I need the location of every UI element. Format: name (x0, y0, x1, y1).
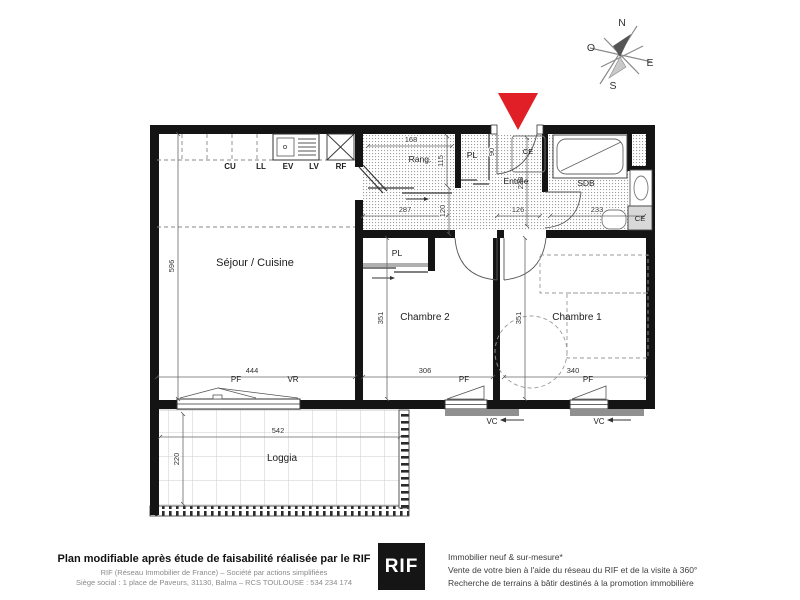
sink-icon (273, 134, 319, 160)
kitchen-counter (157, 134, 355, 227)
kitchen-label-ev: EV (283, 162, 294, 171)
label-pf-sejour: PF (231, 375, 241, 384)
loggia-railing-bottom (150, 506, 409, 516)
dim-233: 233 (591, 205, 604, 214)
closet-label-pl-hall: PL (467, 150, 478, 160)
dim-351-chambre2: 351 (376, 312, 385, 325)
compass-east-label: E (646, 57, 653, 69)
dim-444: 444 (246, 366, 259, 375)
compass-north-label: N (618, 17, 626, 29)
label-vc-chambre1: VC (593, 417, 604, 426)
footer-services: Immobilier neuf & sur-mesure* Vente de v… (448, 551, 748, 589)
dim-168: 168 (405, 135, 418, 144)
room-label-loggia: Loggia (267, 453, 297, 464)
footer-service-line: Immobilier neuf & sur-mesure* (448, 551, 748, 564)
footer-service-line: Vente de votre bien à l'aide du réseau d… (448, 564, 748, 577)
window-sejour (177, 388, 300, 409)
closet-label-pl-chambre2: PL (392, 248, 403, 258)
closet-label-ce-entree: CE (523, 147, 533, 156)
floor-plan: 596 444 306 340 351 351 542 220 287 126 … (0, 0, 800, 540)
label-vc-chambre2: VC (486, 417, 497, 426)
dim-542: 542 (272, 426, 285, 435)
kitchen-label-cu: CU (224, 162, 236, 171)
dim-287: 287 (399, 205, 412, 214)
room-label-chambre1: Chambre 1 (552, 312, 602, 323)
footer-company-address: Siège social : 1 place de Paveurs, 31130… (55, 578, 373, 588)
shutter-arrow-icon (500, 418, 506, 423)
kitchen-label-lv: LV (309, 162, 319, 171)
footer-service-line: Recherche de terrains à bâtir destinés à… (448, 577, 748, 590)
footer-plan-note: Plan modifiable après étude de faisabili… (55, 553, 373, 565)
dim-351-chambre1: 351 (514, 312, 523, 325)
room-label-rang: Rang. (409, 154, 432, 164)
closet-rail (363, 263, 428, 267)
dim-120: 120 (438, 205, 447, 218)
dim-115: 115 (436, 155, 445, 167)
bathtub-icon (553, 135, 627, 178)
room-label-sdb: SDB (577, 178, 595, 188)
dim-306: 306 (419, 366, 432, 375)
wc-icon (602, 210, 626, 229)
rif-logo-text: RIF (385, 556, 419, 578)
closet-label-ce-sdb: CE (635, 214, 645, 223)
label-vr-sejour: VR (287, 375, 298, 384)
room-label-sejour: Séjour / Cuisine (216, 257, 294, 269)
loggia-railing-right (399, 410, 409, 508)
dim-90: 90 (487, 148, 496, 156)
rif-logo: RIF (378, 543, 425, 590)
dim-340: 340 (567, 366, 580, 375)
washbasin-icon (630, 170, 652, 206)
compass-rose-icon: N O E S (587, 17, 654, 92)
footer-company-line: RIF (Réseau Immobilier de France) – Soci… (55, 568, 373, 578)
floor-plan-page: 596 444 306 340 351 351 542 220 287 126 … (0, 0, 800, 600)
kitchen-label-ll: LL (256, 162, 266, 171)
entrance-marker-icon (498, 93, 538, 130)
fridge-icon (327, 134, 354, 160)
footer-company-info: RIF (Réseau Immobilier de France) – Soci… (55, 568, 373, 588)
kitchen-label-rf: RF (336, 162, 347, 171)
compass-south-label: S (609, 80, 616, 92)
room-label-entree: Entrée (503, 176, 528, 186)
label-pf-chambre1: PF (583, 375, 593, 384)
dim-220: 220 (172, 453, 181, 466)
dim-126: 126 (512, 205, 525, 214)
label-pf-chambre2: PF (459, 375, 469, 384)
compass-west-label: O (587, 42, 595, 54)
kitchen-unit-labels: CU LL EV LV RF (224, 162, 346, 171)
shutter-arrow-icon (607, 418, 613, 423)
room-label-chambre2: Chambre 2 (400, 312, 450, 323)
dim-596: 596 (167, 260, 176, 273)
